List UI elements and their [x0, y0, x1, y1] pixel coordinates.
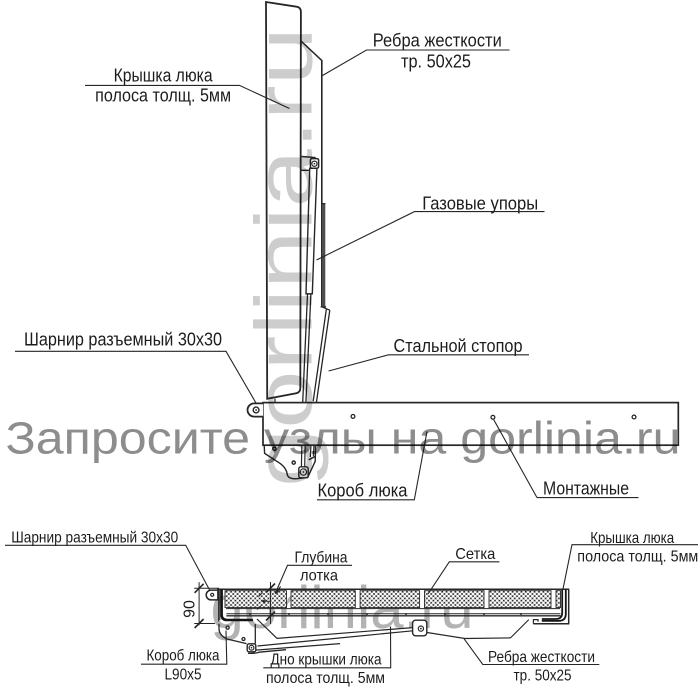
svg-text:полоса толщ. 5мм: полоса толщ. 5мм: [577, 549, 698, 566]
svg-text:лотка: лотка: [300, 568, 338, 585]
svg-text:полоса толщ. 5мм: полоса толщ. 5мм: [266, 670, 385, 687]
svg-text:тр. 50х25: тр. 50х25: [401, 52, 471, 72]
svg-text:Короб люка: Короб люка: [318, 481, 409, 501]
svg-text:Монтажные: Монтажные: [543, 479, 629, 499]
svg-text:Запросите узлы на gorlinia.ru: Запросите узлы на gorlinia.ru: [6, 413, 681, 464]
svg-text:Сетка: Сетка: [455, 546, 495, 563]
svg-text:Стальной стопор: Стальной стопор: [394, 336, 523, 356]
svg-text:gorlinia.ru: gorlinia.ru: [240, 27, 330, 487]
svg-text:Газовые упоры: Газовые упоры: [422, 194, 538, 214]
svg-text:тр. 50х25: тр. 50х25: [514, 667, 572, 684]
svg-text:Крышка люка: Крышка люка: [114, 66, 214, 86]
svg-text:Ребра жесткости: Ребра жесткости: [373, 31, 502, 51]
svg-text:полоса толщ. 5мм: полоса толщ. 5мм: [95, 86, 231, 106]
svg-text:Глубина: Глубина: [295, 550, 348, 567]
svg-text:Шарнир разъемный 30х30: Шарнир разъемный 30х30: [24, 330, 222, 350]
svg-text:Ребра жесткости: Ребра жесткости: [488, 649, 595, 666]
svg-text:Шарнир разъемный 30х30: Шарнир разъемный 30х30: [11, 530, 178, 547]
svg-text:L90х5: L90х5: [165, 667, 202, 684]
svg-text:Дно крышки люка: Дно крышки люка: [271, 651, 382, 668]
svg-text:90: 90: [182, 600, 199, 618]
svg-text:Короб люка: Короб люка: [147, 648, 220, 665]
